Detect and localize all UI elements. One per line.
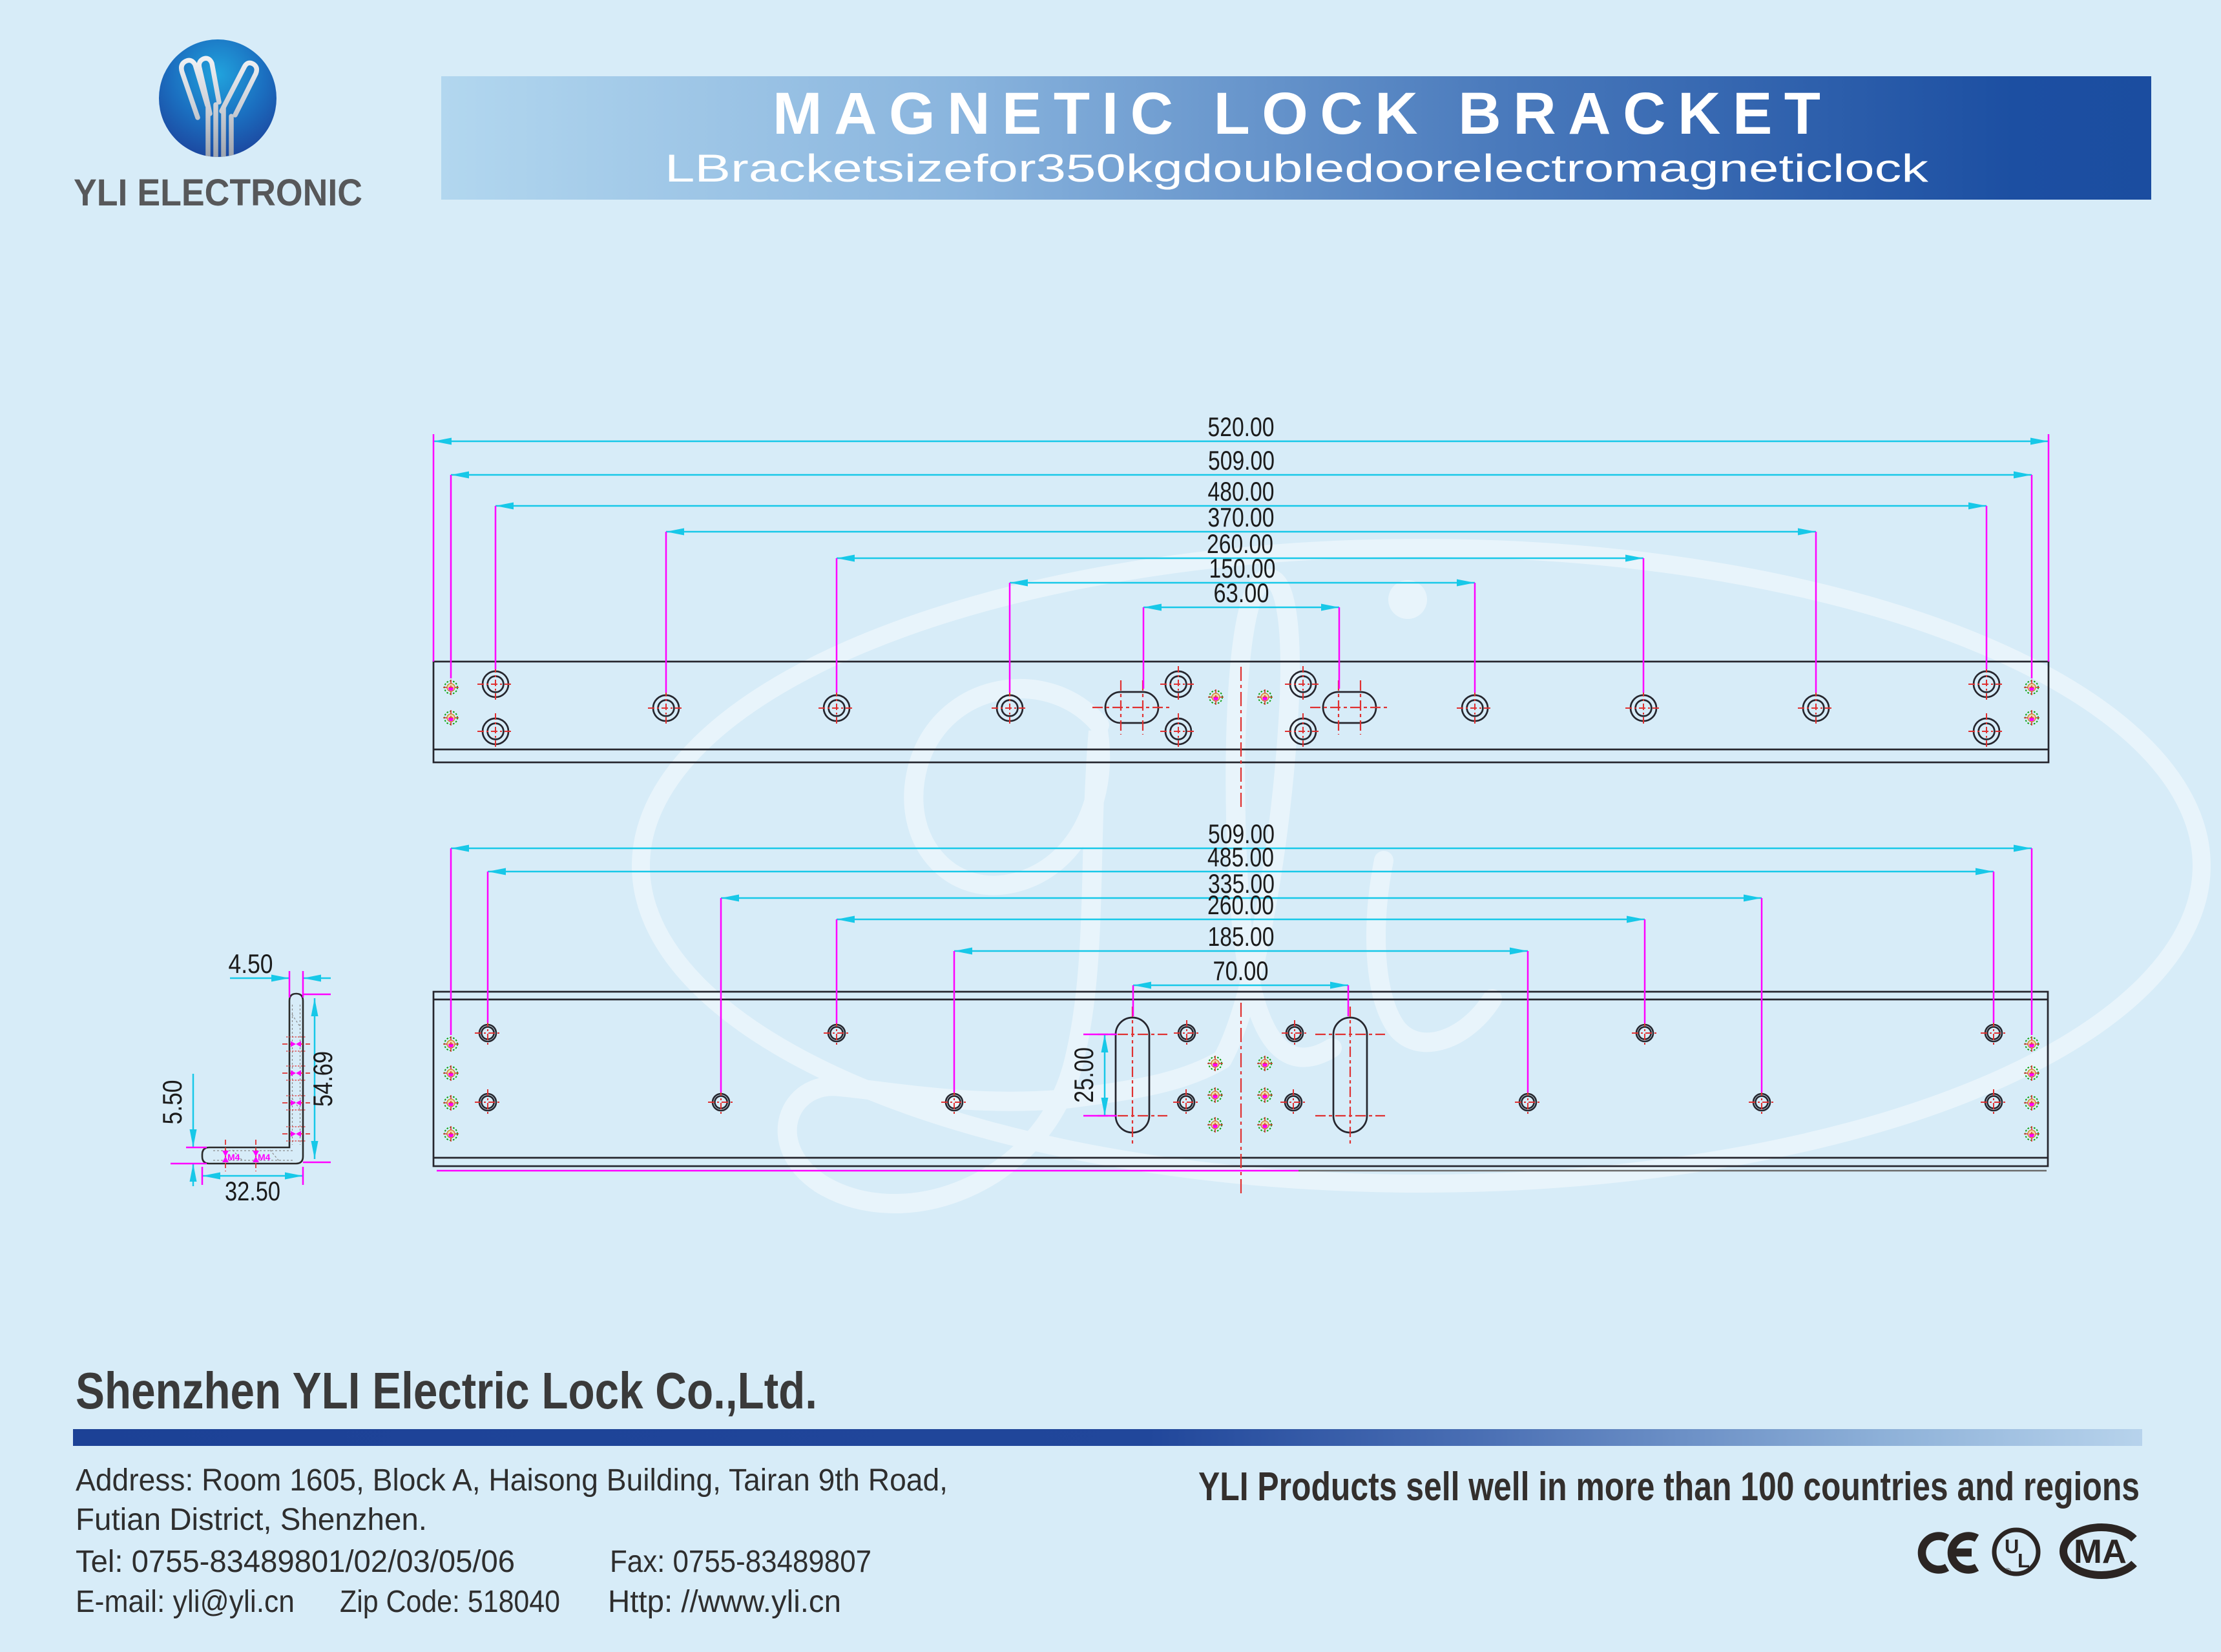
svg-text:Zip Code: 518040: Zip Code: 518040 — [340, 1585, 560, 1619]
svg-text:E-mail: yli@yli.cn: E-mail: yli@yli.cn — [76, 1585, 295, 1619]
svg-text:YLI ELECTRONIC: YLI ELECTRONIC — [74, 172, 362, 214]
svg-text:Shenzhen YLI Electric Lock Co.: Shenzhen YLI Electric Lock Co.,Ltd. — [76, 1362, 817, 1419]
svg-text:520.00: 520.00 — [1208, 412, 1275, 442]
svg-text:Futian District, Shenzhen.: Futian District, Shenzhen. — [76, 1503, 427, 1537]
svg-text:260.00: 260.00 — [1207, 890, 1274, 920]
svg-text:MAGNETIC LOCK BRACKET: MAGNETIC LOCK BRACKET — [773, 81, 1820, 147]
svg-text:54.69: 54.69 — [308, 1051, 338, 1107]
svg-text:L: L — [2018, 1549, 2030, 1572]
svg-text:185.00: 185.00 — [1208, 921, 1275, 952]
svg-text:MA: MA — [2074, 1533, 2127, 1571]
svg-text:M4: M4 — [258, 1152, 271, 1162]
svg-text:370.00: 370.00 — [1208, 502, 1275, 532]
svg-text:5.50: 5.50 — [157, 1080, 187, 1125]
svg-text:25.00: 25.00 — [1069, 1047, 1099, 1103]
svg-text:M4: M4 — [227, 1152, 240, 1162]
svg-text:4.50: 4.50 — [229, 948, 273, 979]
svg-text:485.00: 485.00 — [1207, 842, 1274, 872]
svg-text:Address: Room 1605, Block A, H: Address: Room 1605, Block A, Haisong Bui… — [76, 1463, 948, 1498]
svg-text:LBracketsizefor350kgdoubledoor: LBracketsizefor350kgdoubledoorelectromag… — [665, 147, 1929, 190]
svg-text:Tel: 0755-83489801/02/03/05/06: Tel: 0755-83489801/02/03/05/06 — [76, 1545, 515, 1579]
svg-text:32.50: 32.50 — [225, 1176, 280, 1206]
svg-text:Http: //www.yli.cn: Http: //www.yli.cn — [608, 1585, 841, 1619]
svg-text:70.00: 70.00 — [1213, 956, 1269, 986]
svg-text:63.00: 63.00 — [1214, 578, 1269, 608]
svg-text:Fax: 0755-83489807: Fax: 0755-83489807 — [610, 1545, 871, 1579]
svg-text:YLI Products sell well in more: YLI Products sell well in more than 100 … — [1198, 1465, 2140, 1509]
svg-text:®: ® — [2005, 1566, 2011, 1576]
svg-text:509.00: 509.00 — [1208, 445, 1275, 476]
